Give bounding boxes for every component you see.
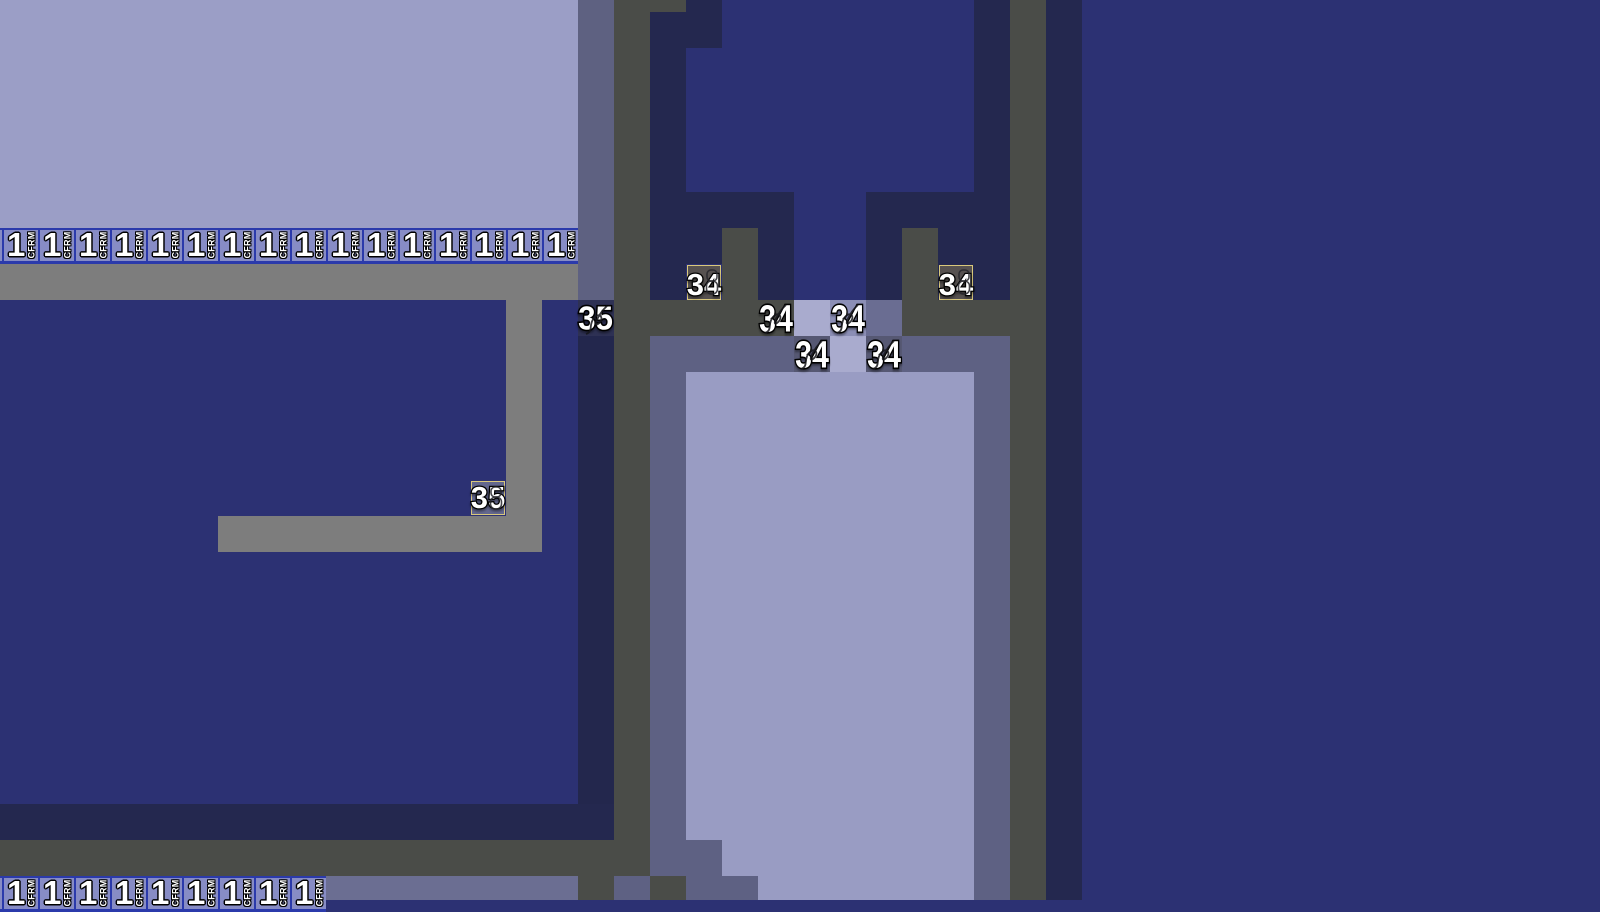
svg-text:35: 35 <box>578 300 613 337</box>
